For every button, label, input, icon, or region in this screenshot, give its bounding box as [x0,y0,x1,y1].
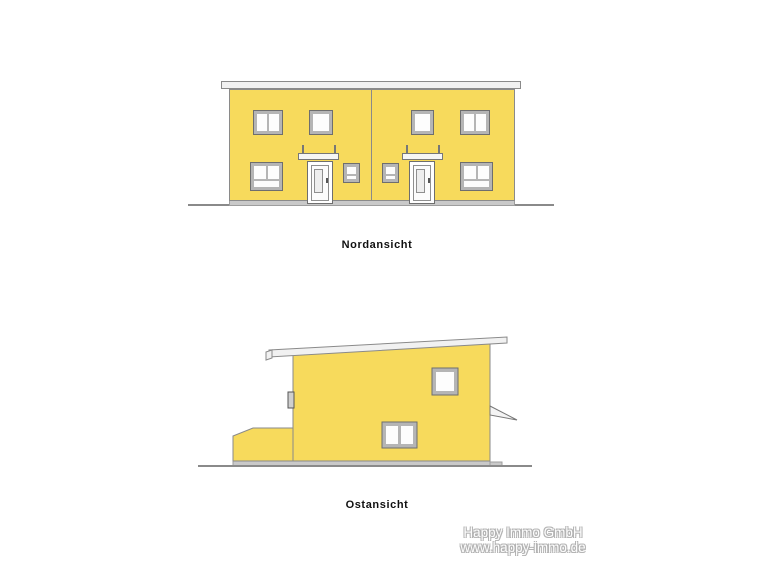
east-gutter-hook [266,350,272,360]
window-pane [386,426,398,444]
watermark-company: Happy Immo GmbH [443,526,603,541]
east-elevation [0,0,768,567]
east-view-label: Ostansicht [277,499,477,511]
watermark: Happy Immo GmbH www.happy-immo.de [443,526,603,555]
east-low-extension [233,428,293,461]
east-canopy-side-view [490,406,517,420]
watermark-website: www.happy-immo.de [443,541,603,556]
window-pane [436,372,454,391]
east-wall-edge-niche [288,392,294,408]
window-pane [401,426,413,444]
elevation-drawing-page: Nordansicht Ostansicht Happy Immo GmbH w… [0,0,768,567]
